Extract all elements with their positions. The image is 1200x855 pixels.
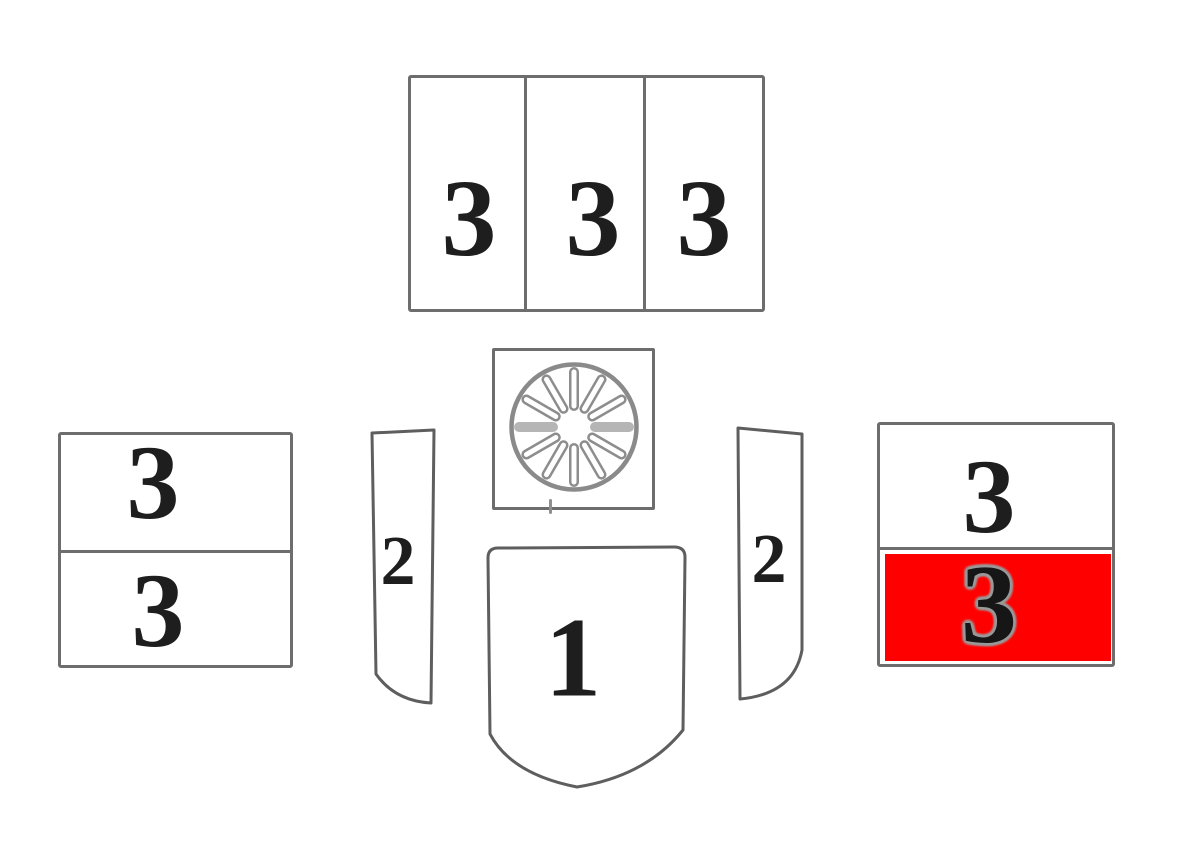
- part-top-brick-center[interactable]: 3: [527, 78, 643, 309]
- part-label: 3: [963, 444, 1016, 550]
- part-label: 3: [677, 163, 732, 273]
- part-group-left-bricks: 3 3: [58, 432, 293, 668]
- part-top-brick-right[interactable]: 3: [646, 78, 762, 309]
- rosette-icon: [495, 351, 652, 507]
- part-left-brick-top[interactable]: 3: [61, 435, 290, 550]
- part-label: 2: [381, 527, 416, 597]
- part-label: 3: [442, 163, 497, 273]
- part-label: 2: [752, 525, 787, 595]
- part-front-shield[interactable]: 1: [486, 544, 690, 794]
- part-label: 3: [127, 430, 180, 536]
- part-left-brick-bottom[interactable]: 3: [61, 553, 290, 665]
- part-label: 3: [132, 558, 185, 664]
- part-group-right-bricks: 3 3: [877, 422, 1115, 667]
- part-label: 3: [961, 549, 1017, 661]
- part-left-rail[interactable]: 2: [370, 426, 438, 708]
- part-right-rail[interactable]: 2: [736, 426, 806, 706]
- part-group-top-bricks: 3 3 3: [408, 75, 765, 312]
- parts-diagram: 3 3 3: [0, 0, 1200, 855]
- part-label: 3: [566, 163, 621, 273]
- part-label: 1: [545, 602, 602, 715]
- part-right-brick-top[interactable]: 3: [880, 425, 1112, 547]
- part-top-brick-left[interactable]: 3: [411, 78, 524, 309]
- part-right-brick-bottom-highlighted[interactable]: 3: [885, 554, 1111, 661]
- stray-mark: [549, 499, 552, 514]
- part-rosette-plate[interactable]: [492, 348, 655, 510]
